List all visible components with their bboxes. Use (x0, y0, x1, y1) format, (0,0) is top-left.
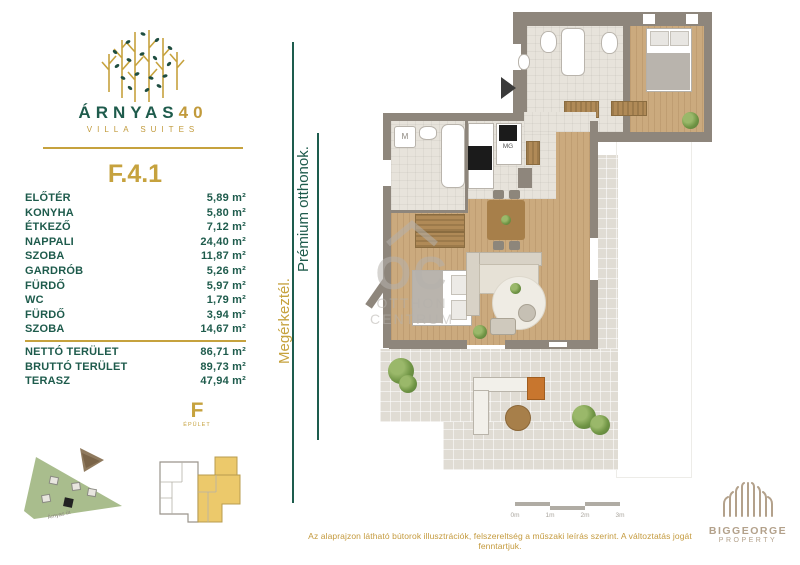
pillow (650, 31, 669, 46)
room-label: SZOBA (25, 322, 65, 337)
bush-icon (399, 375, 417, 393)
outdoor-sofa-arm (473, 390, 489, 435)
brand-name-text: ÁRNYAS (78, 103, 178, 122)
total-value: 89,73 m² (200, 360, 246, 375)
brand-number: 40 (179, 103, 208, 122)
door-opening (383, 160, 391, 186)
total-row: NETTÓ TERÜLET86,71 m² (25, 345, 246, 360)
hall-connector-floor (524, 112, 596, 132)
bush-icon (590, 415, 610, 435)
room-label: NAPPALI (25, 235, 74, 250)
outdoor-table-orange (527, 377, 545, 400)
scale-tick: 0m (505, 512, 525, 519)
kitchen-boards (526, 141, 540, 165)
table-row: KONYHA5,80 m² (25, 206, 246, 221)
bed-double (412, 270, 472, 326)
room-value: 5,97 m² (207, 279, 246, 294)
scale-segment (515, 502, 550, 506)
microwave-icon (499, 125, 517, 141)
highlighted-building (63, 497, 74, 508)
plant-icon (682, 112, 699, 129)
unit-id: F.4.1 (25, 160, 245, 189)
chair (509, 190, 520, 199)
divider-top (43, 147, 243, 149)
biggeorge-logo: BIGGEORGE PROPERTY (698, 480, 798, 544)
room-label: FÜRDŐ (25, 279, 65, 294)
wardrobe (415, 232, 465, 248)
table-row: GARDRÓB5,26 m² (25, 264, 246, 279)
window-right (590, 238, 598, 280)
side-table (518, 304, 536, 322)
plant-icon (473, 325, 487, 339)
tagline-green: Prémium otthonok. (295, 130, 312, 272)
brand-subtitle: VILLA SUITES (40, 125, 246, 134)
room-value: 5,26 m² (207, 264, 246, 279)
table-row: ELŐTÉR5,89 m² (25, 191, 246, 206)
keyplan-label: F ÉPÜLET (157, 400, 237, 428)
scale-tick: 2m (575, 512, 595, 519)
room-label: FÜRDŐ (25, 308, 65, 323)
sofa-arm (466, 252, 480, 316)
table-row: ÉTKEZŐ7,12 m² (25, 220, 246, 235)
chair (493, 241, 504, 250)
total-row: TERASZ47,94 m² (25, 374, 246, 389)
brand-name: ÁRNYAS40 (40, 103, 246, 123)
total-row: BRUTTÓ TERÜLET89,73 m² (25, 360, 246, 375)
table-plant-icon (501, 215, 511, 225)
vertical-rule-left (292, 42, 294, 503)
keyplan-building-letter: F (157, 400, 237, 422)
toilet-icon (601, 32, 618, 54)
table-row: NAPPALI24,40 m² (25, 235, 246, 250)
washing-machine-icon: M (394, 126, 416, 148)
vertical-rule-right (317, 133, 319, 440)
plant-icon (510, 283, 521, 294)
terrace-boundary-outline (616, 128, 692, 478)
scale-segment (585, 502, 620, 506)
washing-machine-label: M (402, 132, 409, 141)
coffee-table-round (505, 405, 531, 431)
scale-tick: 1m (540, 512, 560, 519)
room-area-table: ELŐTÉR5,89 m² KONYHA5,80 m² ÉTKEZŐ7,12 m… (25, 191, 246, 337)
room-label: WC (25, 293, 44, 308)
scale-bar: 0m 1m 2m 3m (510, 498, 640, 520)
window (643, 14, 655, 24)
table-row: FÜRDŐ3,94 m² (25, 308, 246, 323)
room-label: ÉTKEZŐ (25, 220, 71, 235)
floorplan-sheet: { "brand": {"name": "ÁRNYAS", "number": … (0, 0, 800, 565)
sink-icon (518, 54, 530, 70)
stove-icon (468, 146, 492, 170)
keyplan-sub-label: ÉPÜLET (157, 422, 237, 428)
wall-right (590, 121, 598, 345)
room-value: 1,79 m² (207, 293, 246, 308)
blanket (413, 271, 443, 323)
biggeorge-property: PROPERTY (698, 537, 798, 544)
divider-totals (25, 340, 246, 342)
total-label: NETTÓ TERÜLET (25, 345, 119, 360)
highlighted-unit (198, 475, 240, 522)
room-value: 5,89 m² (207, 191, 246, 206)
wall-bath2-bottom (391, 210, 468, 213)
entrance-arrow-icon (501, 77, 516, 99)
room-value: 7,12 m² (207, 220, 246, 235)
bathtub-icon (441, 124, 465, 188)
wall-left (383, 113, 391, 348)
total-value: 86,71 m² (200, 345, 246, 360)
room-value: 14,67 m² (200, 322, 246, 337)
room-value: 24,40 m² (200, 235, 246, 250)
biggeorge-name: BIGGEORGE (698, 525, 798, 537)
highlighted-unit-upper (215, 457, 237, 475)
sink-icon (419, 126, 437, 140)
total-value: 47,94 m² (200, 374, 246, 389)
table-row: SZOBA11,87 m² (25, 249, 246, 264)
bed-double (646, 28, 692, 92)
terrace-strip-right (596, 155, 618, 349)
hall-bench (611, 101, 647, 116)
wall-top (383, 113, 522, 121)
tagline-gold: Megérkeztél. (276, 248, 293, 364)
disclaimer-text: Az alaprajzon látható bútorok illusztrác… (295, 531, 705, 551)
wall-stub (518, 168, 532, 188)
blanket (647, 53, 690, 90)
bathtub-icon (561, 28, 585, 76)
armchair (490, 318, 516, 335)
table-row: SZOBA14,67 m² (25, 322, 246, 337)
site-plan: Árnyas út (22, 445, 142, 533)
room-value: 5,80 m² (207, 206, 246, 221)
pillow (451, 275, 467, 295)
room-value: 3,94 m² (207, 308, 246, 323)
window-bottom (549, 342, 567, 347)
pillow (451, 300, 467, 320)
room-label: GARDRÓB (25, 264, 83, 279)
total-label: BRUTTÓ TERÜLET (25, 360, 127, 375)
brand-tree-logo (95, 18, 191, 104)
table-row: FÜRDŐ5,97 m² (25, 279, 246, 294)
key-plan (152, 452, 247, 527)
wall-bottom-left (389, 340, 467, 349)
toilet-icon (540, 31, 557, 53)
room-label: SZOBA (25, 249, 65, 264)
wardrobe (415, 214, 465, 232)
chair (509, 241, 520, 250)
pillow (670, 31, 689, 46)
scale-segment (550, 506, 585, 510)
chair (493, 190, 504, 199)
table-row: WC1,79 m² (25, 293, 246, 308)
total-label: TERASZ (25, 374, 70, 389)
window (686, 14, 698, 24)
biggeorge-mark-icon (716, 480, 780, 520)
room-label: ELŐTÉR (25, 191, 71, 206)
room-label: KONYHA (25, 206, 74, 221)
room-value: 11,87 m² (201, 249, 246, 264)
totals-table: NETTÓ TERÜLET86,71 m² BRUTTÓ TERÜLET89,7… (25, 345, 246, 389)
scale-tick: 3m (610, 512, 630, 519)
microwave-label: MG (497, 143, 519, 150)
